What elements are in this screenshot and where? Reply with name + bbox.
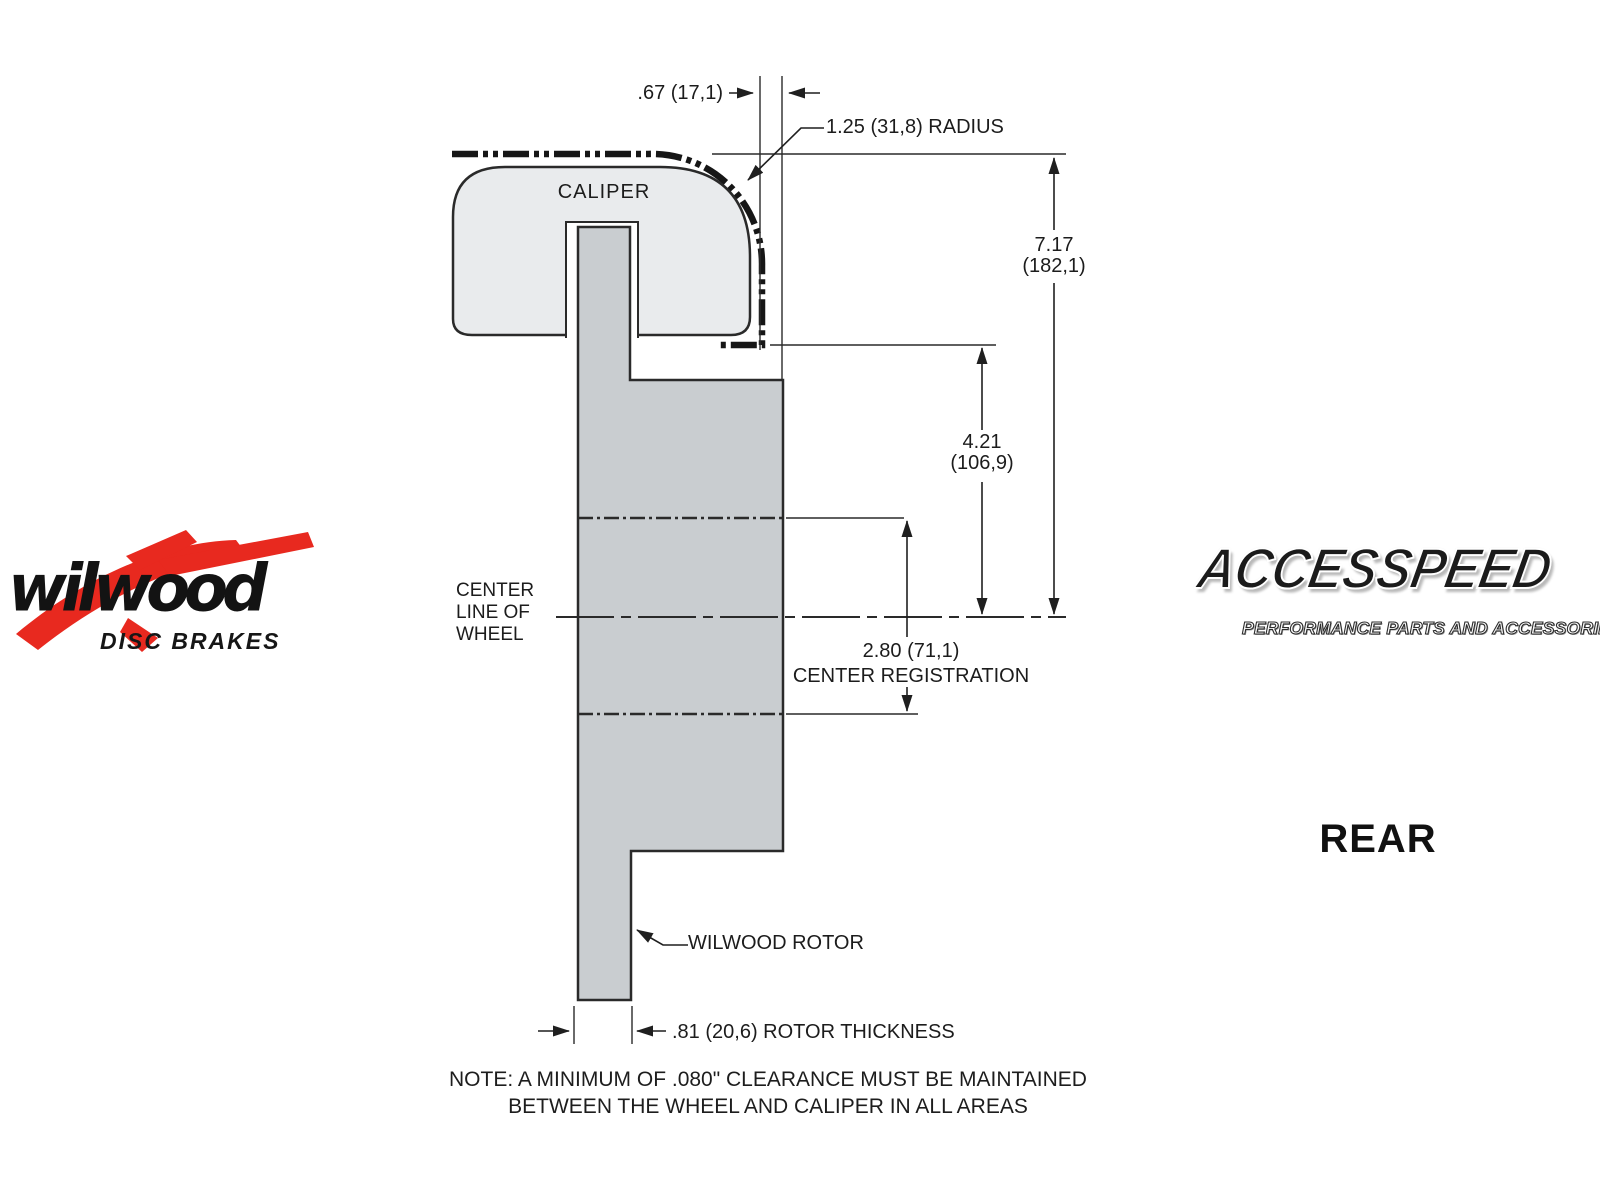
dim-radius: 1.25 (31,8) RADIUS	[826, 117, 1004, 139]
brake-diagram-page: CALIPER .67 (17,1) 1.25 (31,8) RADIUS 7.…	[0, 0, 1600, 1200]
dim-center-registration: 2.80 (71,1)CENTER REGISTRATION	[786, 639, 1036, 689]
dim-overall-mm: (182,1)	[1022, 255, 1085, 277]
dim-mid-in: 4.21	[963, 431, 1002, 453]
dim-registration-value: 2.80 (71,1)	[863, 640, 960, 662]
clearance-note: NOTE: A MINIMUM OF .080" CLEARANCE MUST …	[398, 1066, 1138, 1120]
dim-registration-label: CENTER REGISTRATION	[793, 665, 1029, 687]
centerline-label: CENTERLINE OFWHEEL	[456, 580, 534, 646]
centerline-label-line1: CENTER	[456, 580, 534, 601]
dim-overall-in: 7.17	[1035, 234, 1074, 256]
dim-caliper-offset: .67 (17,1)	[575, 83, 723, 105]
accesspeed-wordmark: ACCESSPEED	[1192, 536, 1556, 602]
wilwood-logo: wilwood DISC BRAKES	[8, 522, 323, 662]
wilwood-tagline: DISC BRAKES	[100, 628, 280, 655]
dim-caliper-to-center: 4.21(106,9)	[932, 432, 1032, 474]
rotor-label: WILWOOD ROTOR	[688, 933, 864, 955]
dim-mid-mm: (106,9)	[950, 452, 1013, 474]
clearance-note-line1: NOTE: A MINIMUM OF .080" CLEARANCE MUST …	[449, 1068, 1087, 1091]
clearance-note-line2: BETWEEN THE WHEEL AND CALIPER IN ALL ARE…	[508, 1095, 1028, 1118]
view-label-rear: REAR	[1308, 818, 1448, 861]
dim-rotor-thickness: .81 (20,6) ROTOR THICKNESS	[672, 1022, 955, 1044]
centerline-label-line2: LINE OF	[456, 602, 530, 623]
accesspeed-tagline: PERFORMANCE PARTS AND ACCESSORIES	[1242, 618, 1600, 639]
wilwood-wordmark: wilwood	[8, 551, 262, 626]
caliper-label: CALIPER	[548, 182, 660, 204]
centerline-label-line3: WHEEL	[456, 624, 524, 645]
accesspeed-logo: ACCESSPEED PERFORMANCE PARTS AND ACCESSO…	[1198, 536, 1593, 654]
dim-overall-height: 7.17(182,1)	[1004, 235, 1104, 277]
